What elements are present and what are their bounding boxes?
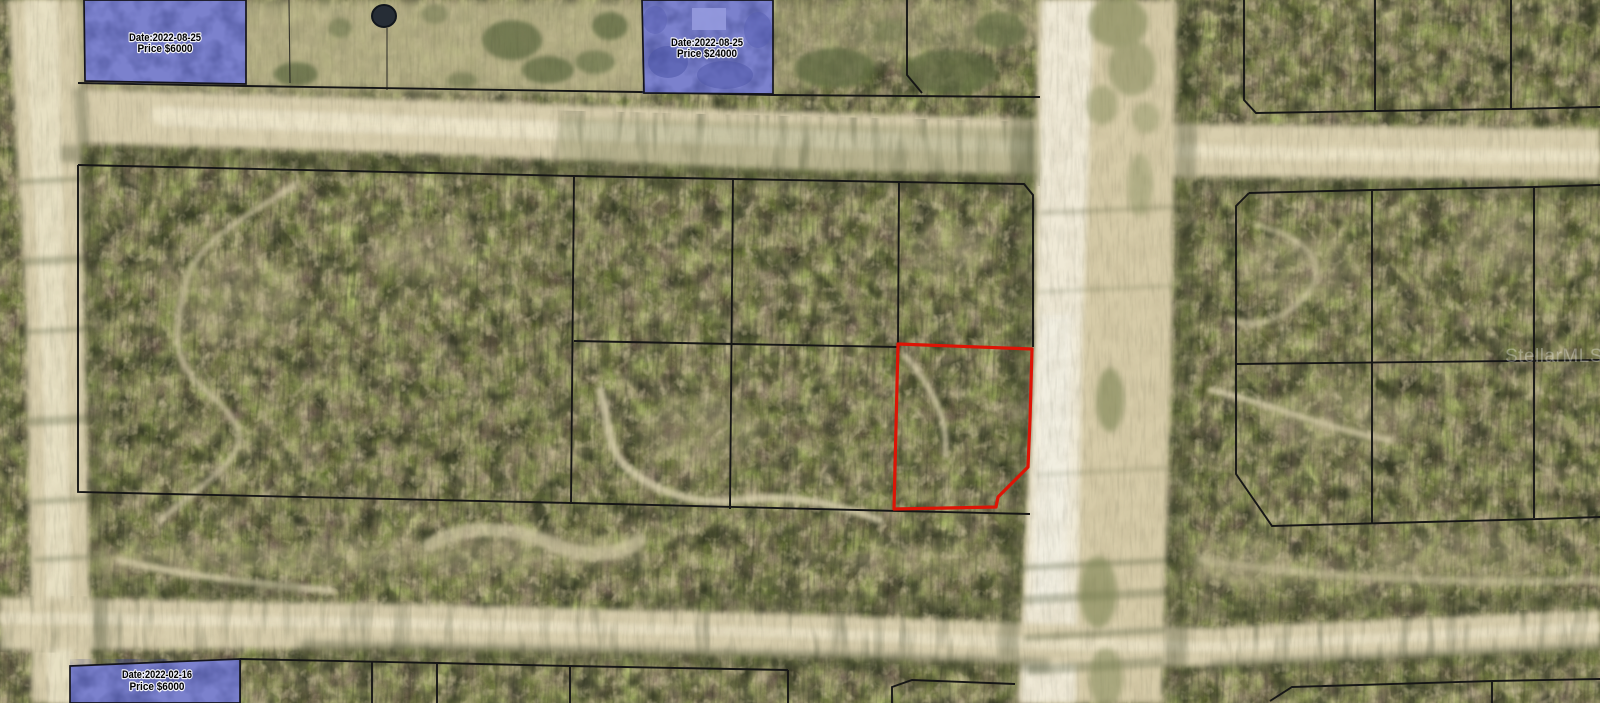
svg-text:Price $6000: Price $6000: [130, 681, 185, 693]
svg-text:Price $24000: Price $24000: [677, 48, 737, 60]
svg-text:StellarMLS: StellarMLS: [1505, 346, 1600, 367]
svg-text:Price $6000: Price $6000: [138, 43, 193, 55]
svg-text:Date:2022-02-16: Date:2022-02-16: [122, 669, 192, 681]
